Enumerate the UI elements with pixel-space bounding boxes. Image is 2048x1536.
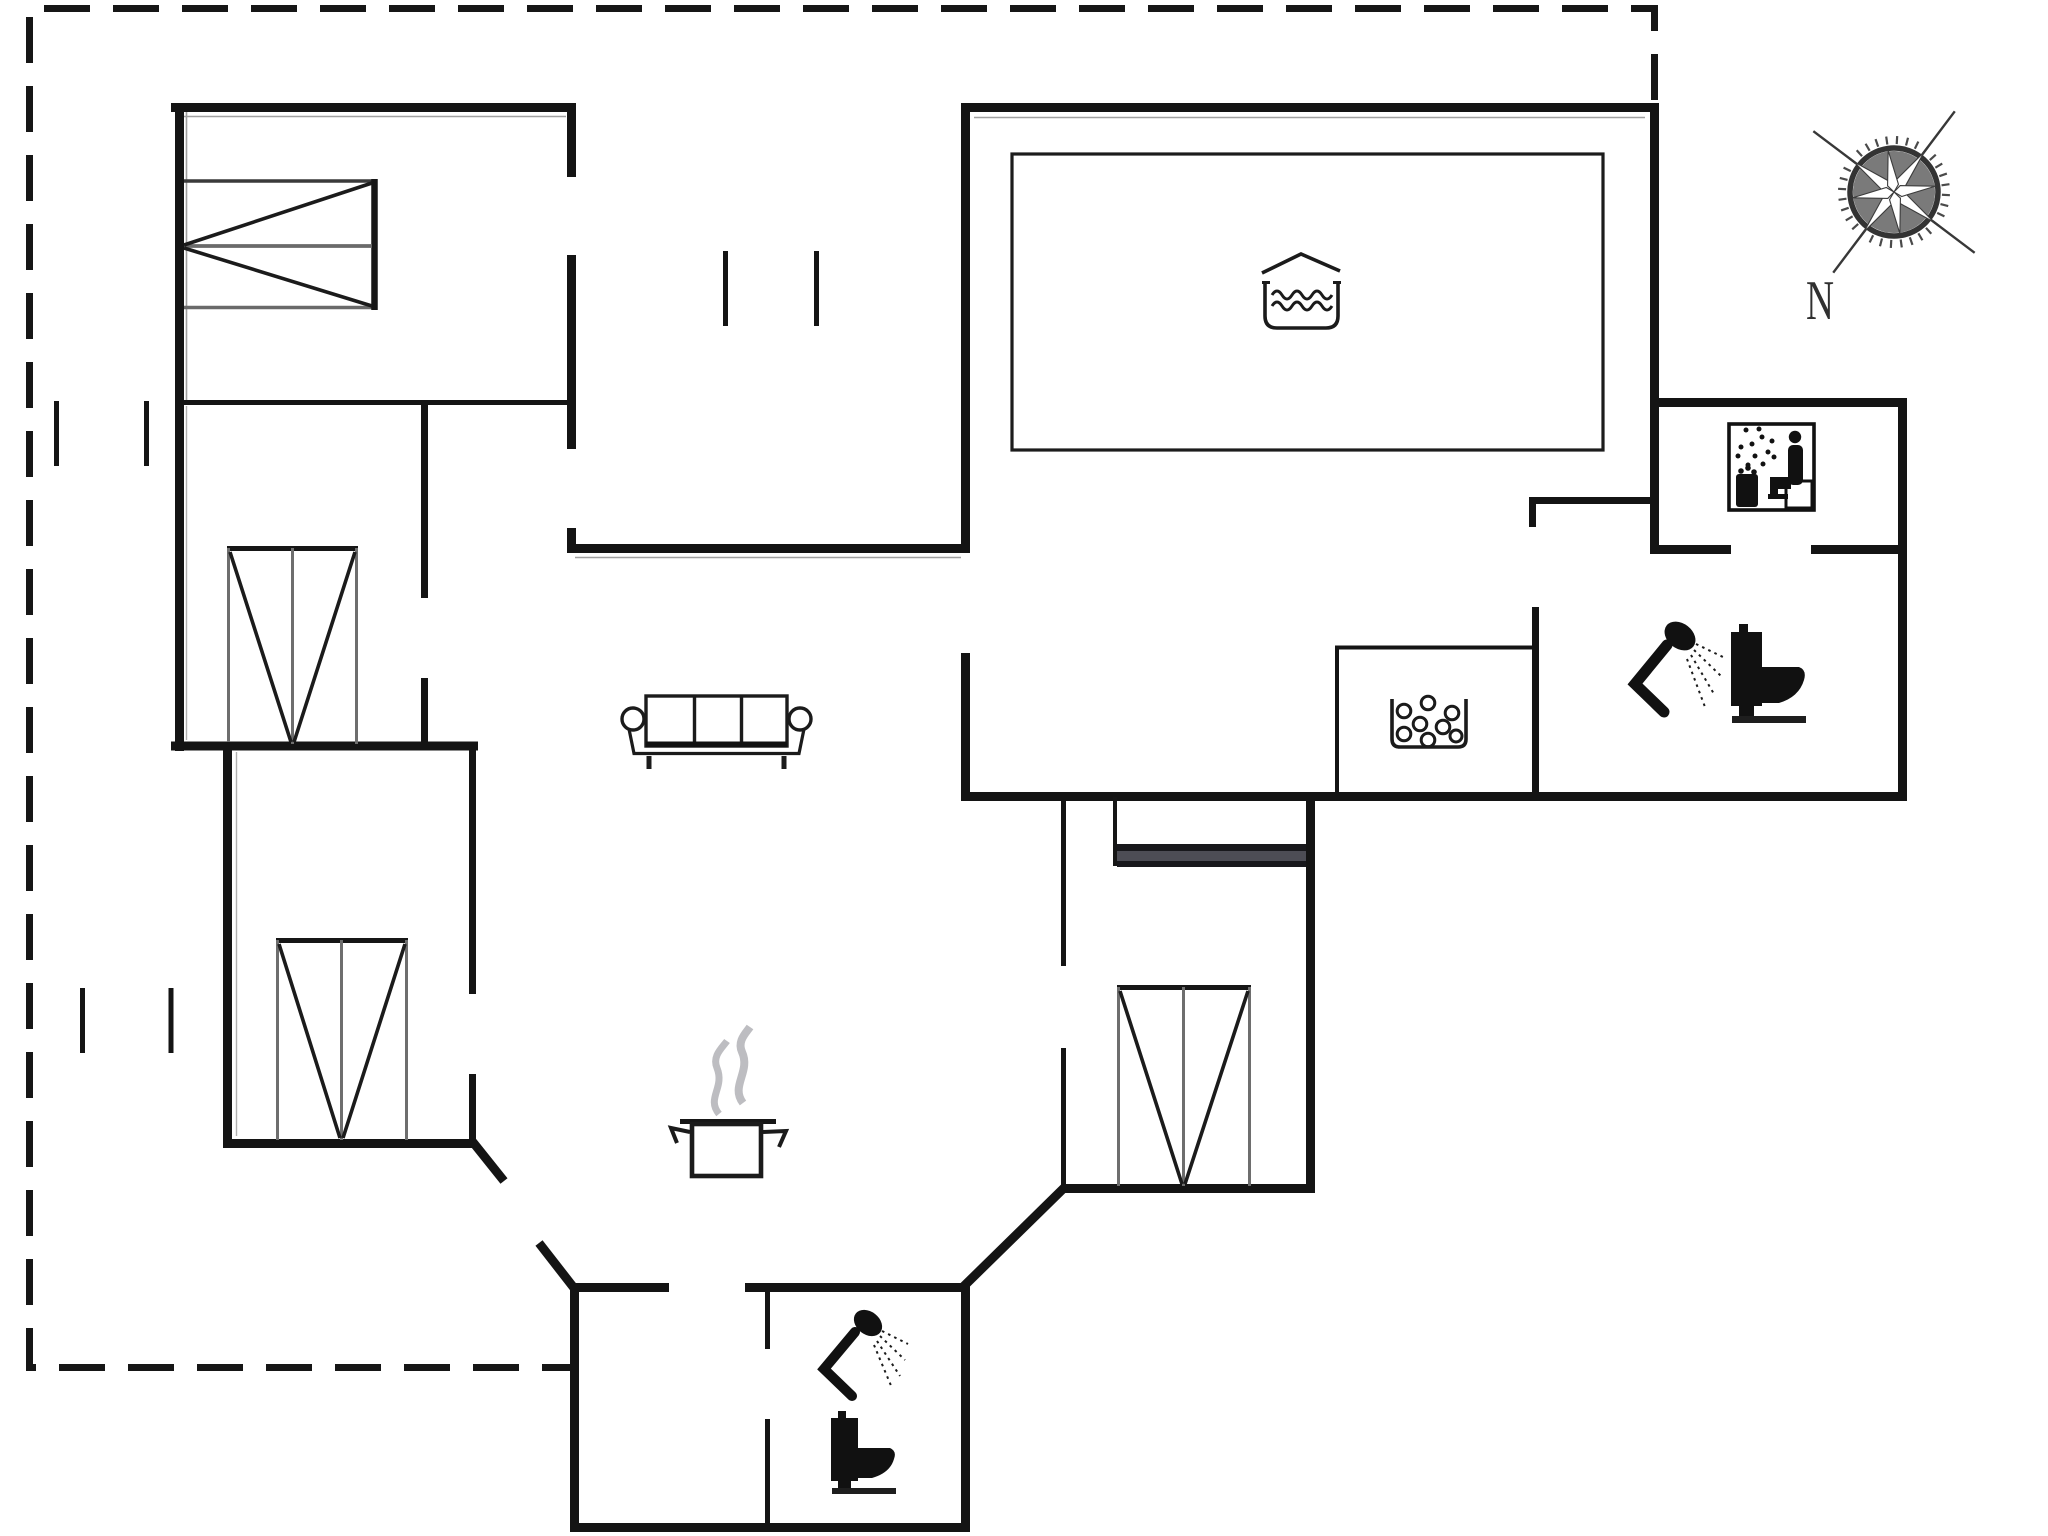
svg-text:N: N (1806, 270, 1834, 332)
